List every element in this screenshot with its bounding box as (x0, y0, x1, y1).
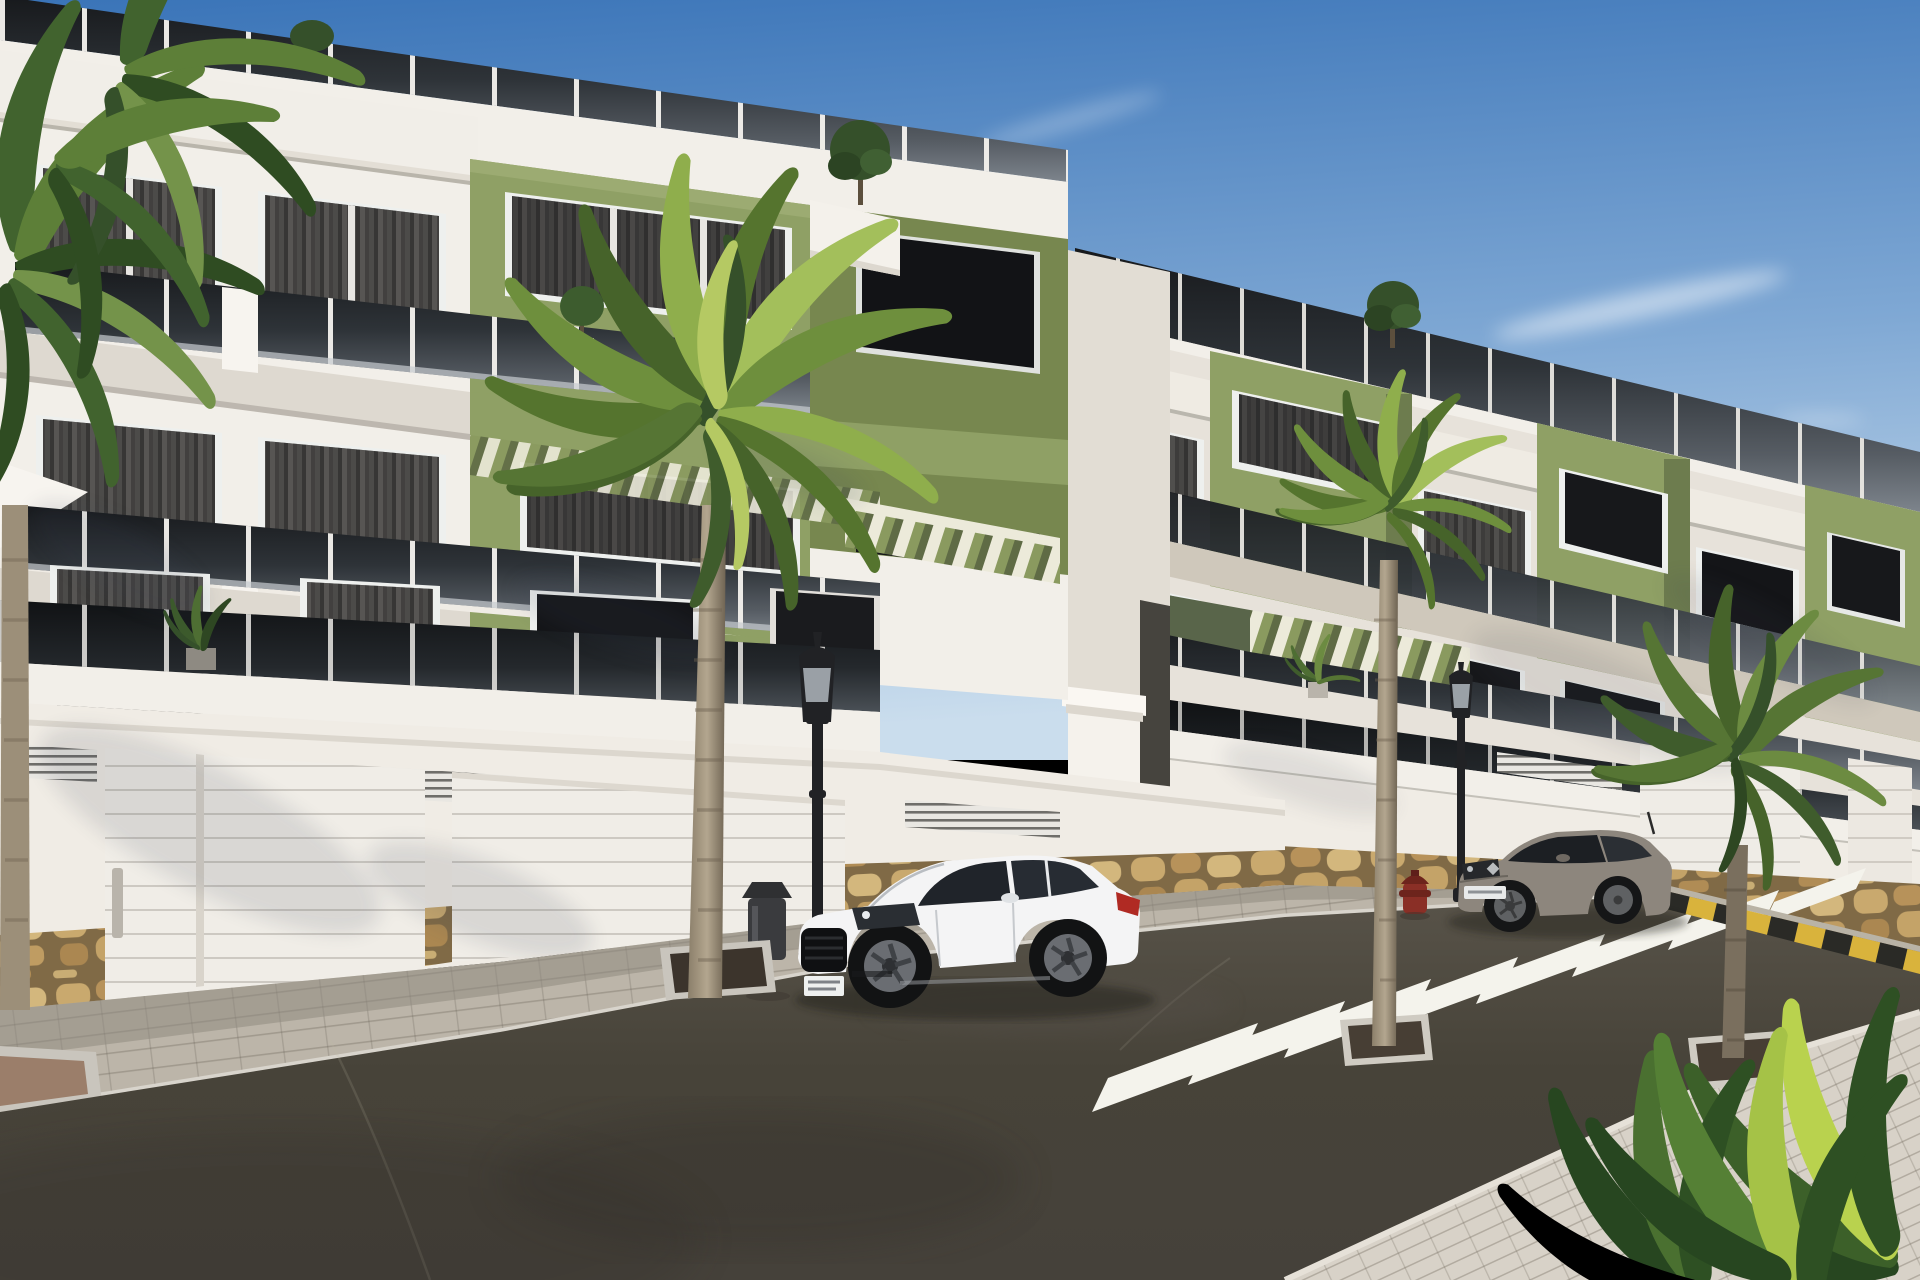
car-white-wheel-front (848, 924, 932, 1008)
car-white-wheel-rear (1029, 919, 1107, 997)
car-grey-mirror (1556, 854, 1570, 862)
car-white-plate (804, 976, 844, 996)
render-canvas (0, 0, 1920, 1280)
car-white-grille (801, 928, 847, 972)
car-white-mirror (1001, 893, 1019, 903)
scene-architectural-render (0, 0, 1920, 1280)
car-grey-wheel-rear (1594, 876, 1642, 924)
garage-door-handle (112, 868, 123, 938)
